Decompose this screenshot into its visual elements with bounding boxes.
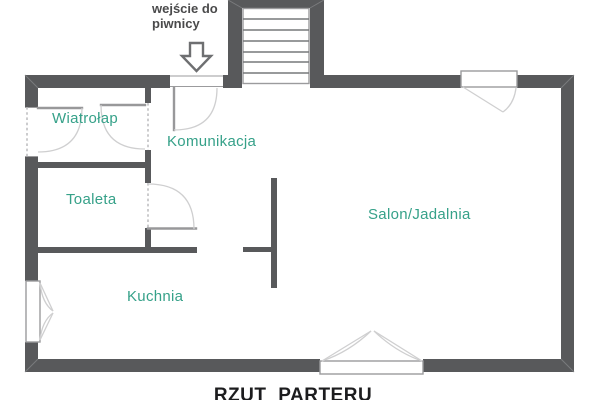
wall-openings (25, 76, 223, 228)
floor-plan: wejście do piwnicy Wiatrołap Komunikacja… (0, 0, 600, 400)
plan-title: RZUT PARTERU (143, 385, 443, 400)
main-entry-door-swing-arc (174, 88, 217, 130)
salon-french-door-leaf (322, 331, 371, 361)
toaleta-door-swing-arc (148, 184, 194, 229)
wall-salon-divider (271, 178, 277, 288)
basement-entrance-note: wejście do piwnicy (152, 1, 218, 31)
wall-top-left (25, 75, 170, 88)
wall-bottom-left (25, 359, 320, 372)
wall-left-middle (25, 157, 38, 281)
wall-wiatrolap-toaleta (38, 162, 151, 168)
salon-french-door-leaf (374, 331, 422, 361)
stairwell-wall-left (228, 0, 242, 88)
room-label-kuchnia: Kuchnia (127, 288, 183, 305)
stairs-symbol (243, 9, 309, 84)
stairwell-wall-top (228, 0, 324, 8)
partition-wiatrolap-top (145, 88, 151, 103)
room-label-salon-jadalnia: Salon/Jadalnia (368, 206, 471, 223)
room-label-wiatrolap: Wiatrołap (52, 110, 118, 127)
wall-kuchnia-top (38, 247, 197, 253)
stairwell-wall-right (310, 0, 324, 88)
wall-top-right-a (324, 75, 461, 88)
kuchnia-window-frame (26, 281, 40, 342)
down-arrow-icon (182, 43, 211, 71)
kuchnia-window-leaf (40, 313, 53, 340)
wall-bottom-right (423, 359, 574, 372)
salon-top-window-swing-arc (503, 88, 516, 112)
wall-top-right-b (517, 75, 574, 88)
stairs-outline (243, 9, 309, 84)
basement-note-line1: wejście do (152, 1, 218, 16)
salon-french-door-frame (320, 361, 423, 374)
wall-right (561, 88, 574, 372)
kuchnia-window-leaf (40, 283, 53, 311)
basement-note-line2: piwnicy (152, 16, 200, 31)
salon-top-window-leaf (463, 87, 503, 112)
salon-top-window-frame (461, 71, 517, 87)
room-label-komunikacja: Komunikacja (167, 133, 256, 150)
partition-toaleta-top (145, 168, 151, 183)
room-label-toaleta: Toaleta (66, 191, 116, 208)
